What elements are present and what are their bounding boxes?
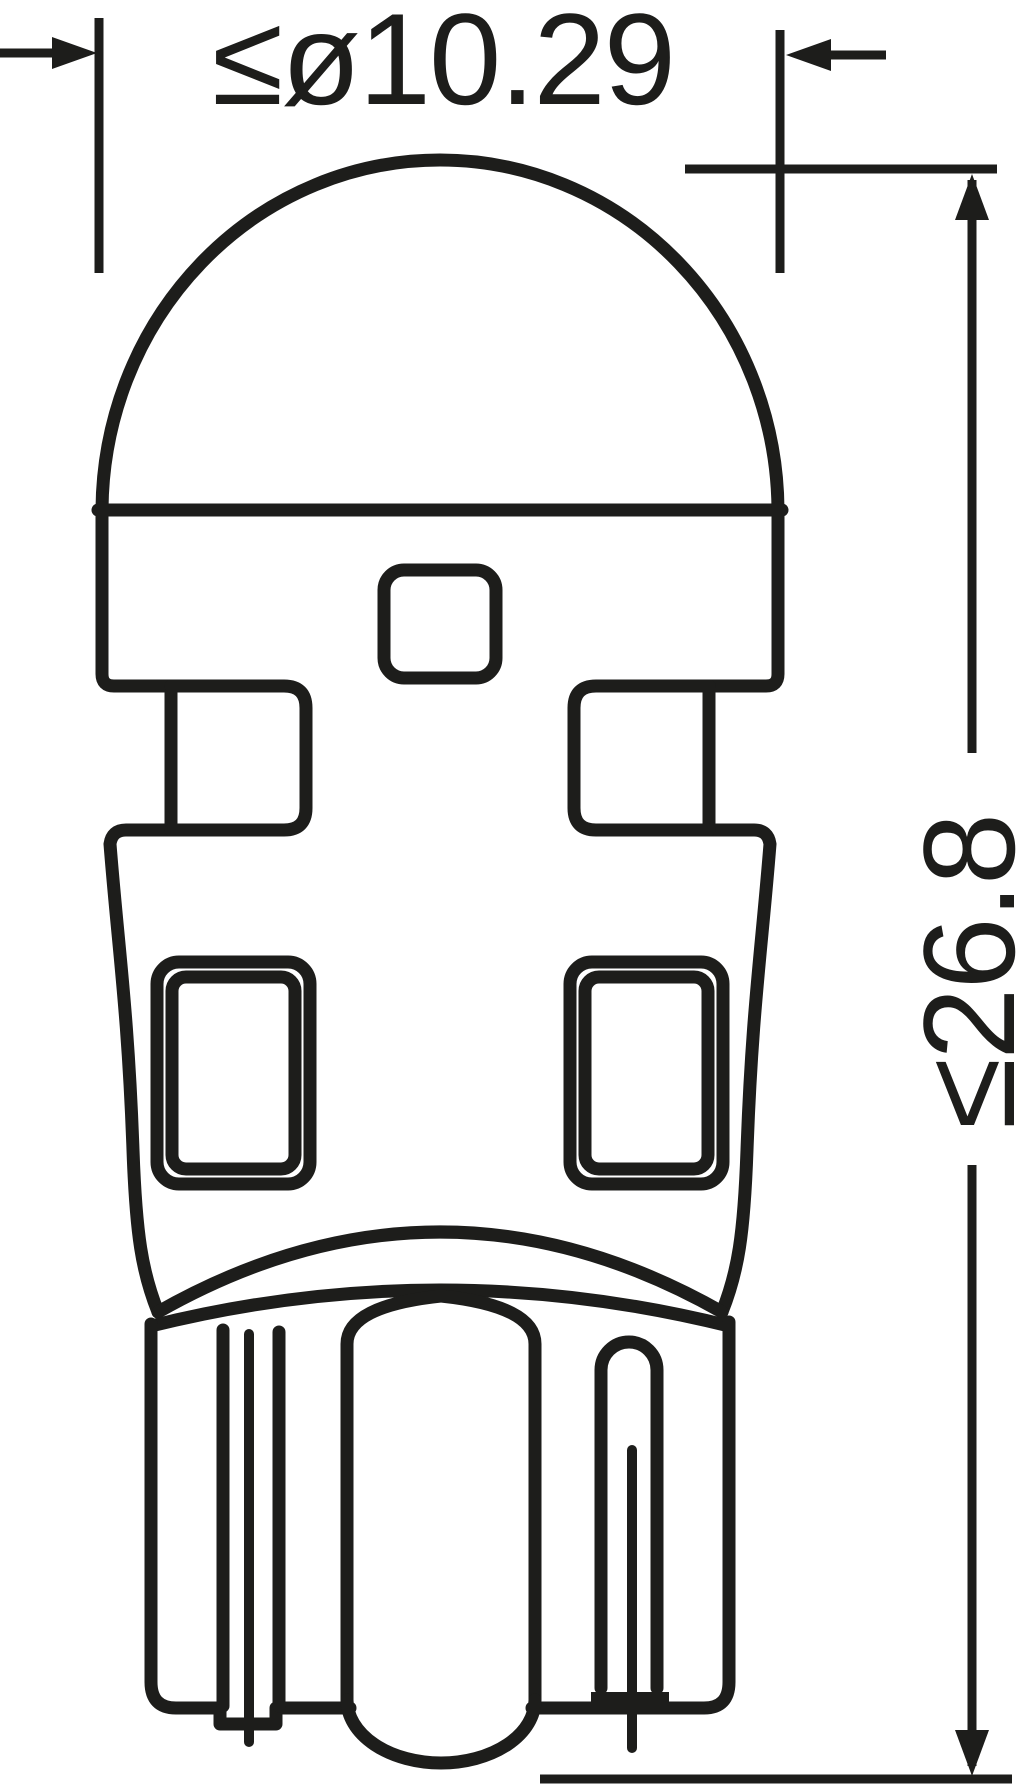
arrowhead-left-icon <box>786 39 831 71</box>
diameter-dimension-label: ≤ø10.29 <box>212 0 674 132</box>
side-window-upper-left <box>171 686 306 830</box>
arrowhead-up-icon <box>955 174 989 220</box>
arrowhead-right-icon <box>52 37 97 69</box>
side-window-upper-right <box>574 686 709 830</box>
glass-bead-dome <box>347 1700 535 1763</box>
bulb-outline <box>98 160 782 1326</box>
led-window-right-outer <box>570 962 723 1184</box>
bulb-dome <box>102 160 778 512</box>
bulb-dimension-diagram: ≤ø10.29 ≤26.8 <box>0 0 1024 1784</box>
diameter-dimension: ≤ø10.29 <box>0 0 886 273</box>
body-profile-right <box>709 508 778 1312</box>
length-dimension-label: ≤26.8 <box>896 815 1024 1129</box>
technical-drawing-canvas: ≤ø10.29 ≤26.8 <box>0 0 1024 1784</box>
center-square-window <box>384 570 496 678</box>
wedge-base <box>151 1296 729 1763</box>
led-window-left-inner <box>172 977 295 1169</box>
body-profile-left <box>102 508 171 1312</box>
led-window-left-outer <box>157 962 310 1184</box>
glass-pinch <box>347 1296 535 1700</box>
led-window-right-inner <box>585 977 708 1169</box>
arrowhead-down-icon <box>955 1730 989 1776</box>
